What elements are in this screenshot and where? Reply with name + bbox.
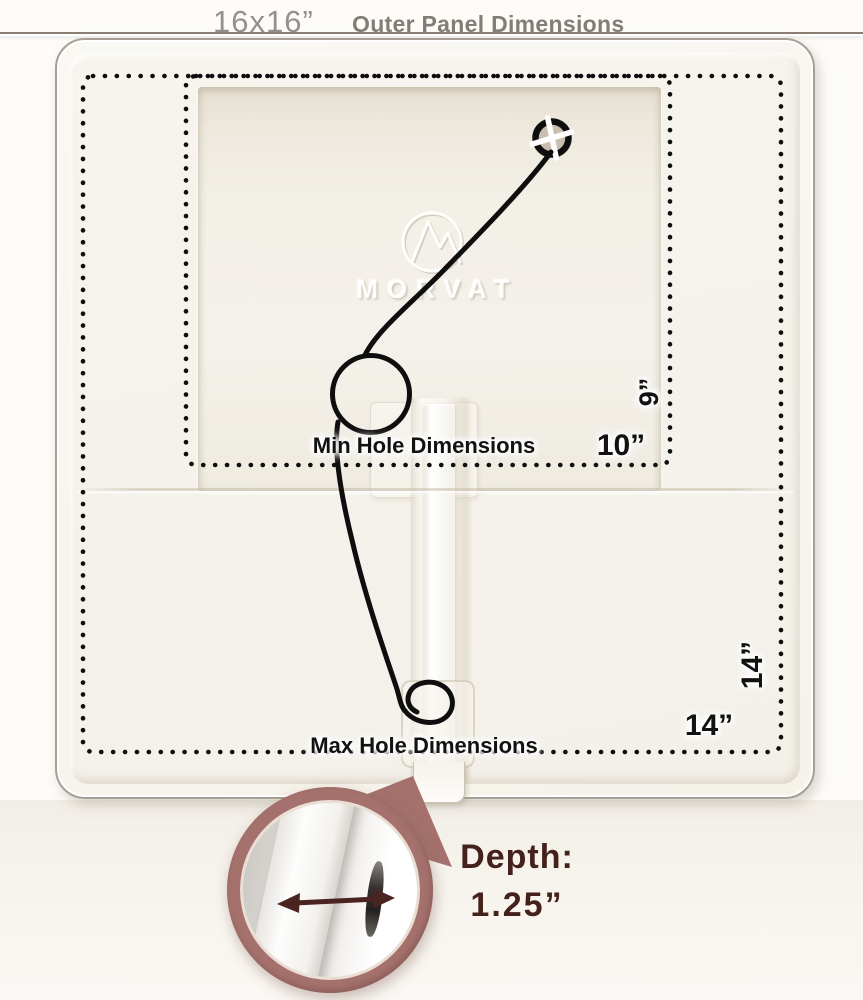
product-dimension-diagram: 16x16” Outer Panel Dimensions MORVAT (0, 0, 863, 1000)
min-hole-height-value: 9” (634, 362, 664, 422)
magnifier-inner-ring (240, 800, 420, 980)
access-panel (55, 38, 815, 799)
depth-arrow-icon (243, 803, 417, 977)
panel-molding-seam (77, 488, 793, 491)
min-hole-width-value: 10” (581, 429, 661, 463)
max-hole-height-value: 14” (736, 630, 768, 700)
depth-callout: Depth: 1.25” (437, 838, 597, 925)
depth-label: Depth: (437, 838, 597, 877)
magnifier-photo (243, 803, 417, 977)
header-divider (0, 32, 863, 34)
max-hole-width-value: 14” (669, 709, 749, 743)
panel-size-text: 16x16” (213, 4, 314, 40)
latch-tab (413, 762, 465, 803)
magnifier-callout (227, 787, 433, 993)
depth-value: 1.25” (437, 886, 597, 925)
min-hole-label: Min Hole Dimensions (294, 433, 554, 459)
max-hole-label: Max Hole Dimensions (294, 733, 554, 759)
brand-watermark: MORVAT (331, 274, 535, 305)
